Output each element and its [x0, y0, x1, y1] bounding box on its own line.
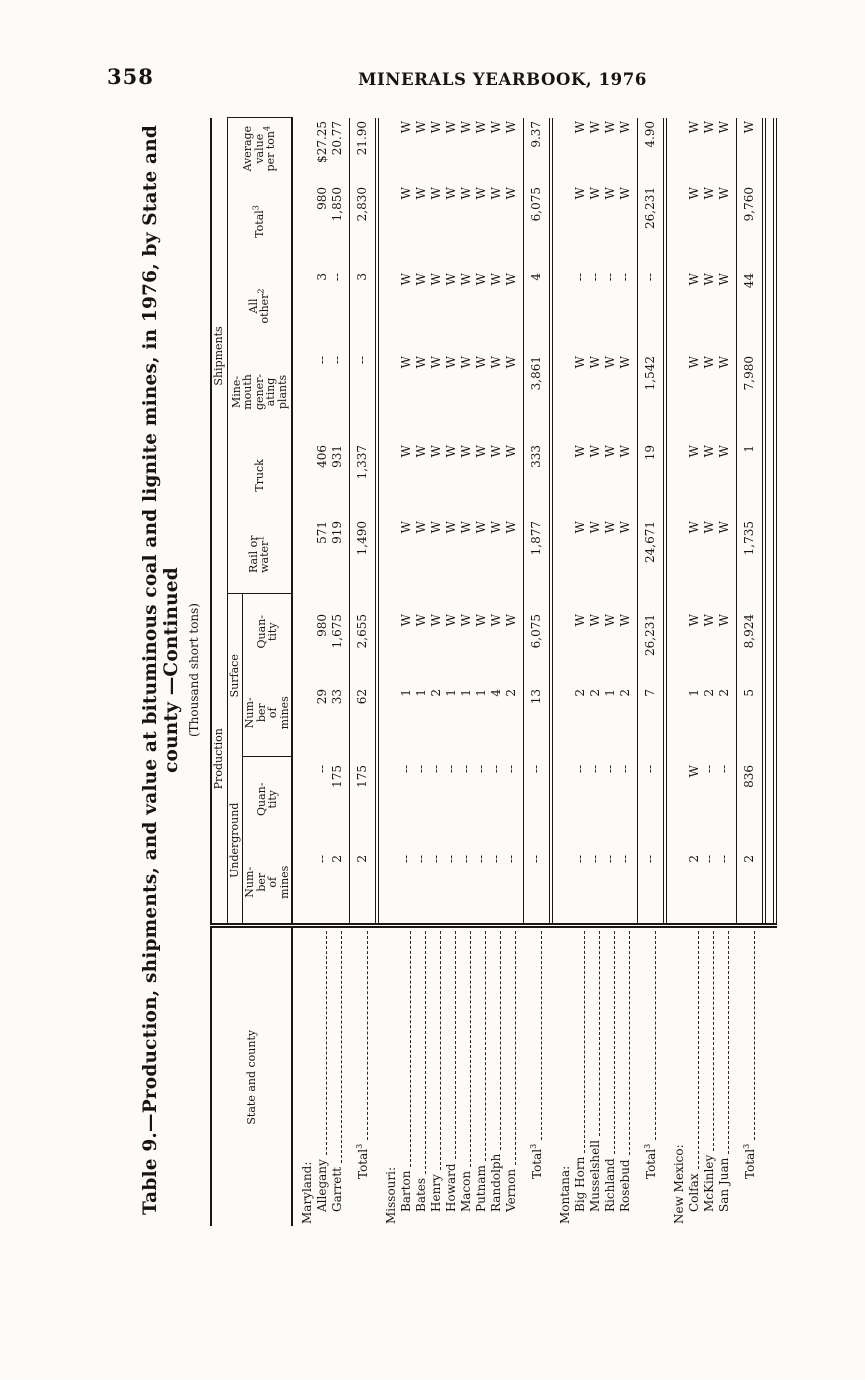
data-cell: W	[459, 515, 474, 594]
data-cell: --	[315, 841, 330, 926]
data-cell: --	[350, 348, 378, 436]
leader-dashes	[485, 932, 486, 1162]
data-cell: 33	[330, 669, 350, 757]
data-cell: 175	[350, 757, 378, 841]
data-cell: 1	[474, 669, 489, 757]
data-cell	[377, 118, 399, 179]
data-cell: --	[618, 841, 638, 926]
data-cell: 919	[330, 515, 350, 594]
row-label: Montana:	[558, 1166, 573, 1224]
row-label: Putnam	[474, 1165, 489, 1212]
data-cell: W	[414, 118, 429, 179]
data-cell: 6,075	[524, 594, 552, 669]
leader-dashes	[614, 932, 615, 1155]
table-bottom-rule-row	[764, 118, 775, 1226]
data-cell: --	[399, 841, 414, 926]
data-cell: W	[618, 179, 638, 264]
data-cell: --	[573, 264, 588, 348]
row-label: Howard	[444, 1163, 459, 1212]
data-cell: W	[717, 515, 737, 594]
table-row-county: Rosebud----2WWWW--WW	[618, 118, 638, 1226]
data-cell	[665, 264, 687, 348]
data-cell: W	[588, 594, 603, 669]
stub-cell: Maryland:	[292, 926, 315, 1226]
data-cell: W	[399, 515, 414, 594]
data-cell	[292, 264, 315, 348]
data-cell: --	[444, 841, 459, 926]
subgroup-header-underground: Underground	[227, 757, 243, 926]
data-cell: W	[414, 264, 429, 348]
data-cell: W	[573, 594, 588, 669]
data-cell: 1,490	[350, 515, 378, 594]
table-row-county: Randolph----4WWWWWWW	[489, 118, 504, 1226]
data-cell: W	[603, 118, 618, 179]
data-cell	[292, 841, 315, 926]
leader-dashes	[470, 932, 471, 1167]
data-cell: --	[618, 264, 638, 348]
data-cell: 931	[330, 436, 350, 515]
data-cell: W	[444, 515, 459, 594]
row-label: McKinley	[702, 1155, 717, 1212]
column-header-truck: Truck	[227, 436, 292, 515]
data-cell: W	[618, 594, 638, 669]
data-cell: 980	[315, 594, 330, 669]
data-cell: --	[573, 841, 588, 926]
stub-cell: Bates	[414, 926, 429, 1226]
data-cell: W	[414, 515, 429, 594]
data-cell	[377, 841, 399, 926]
data-cell	[551, 594, 573, 669]
row-label: Allegany	[315, 1159, 330, 1212]
stub-cell: Randolph	[489, 926, 504, 1226]
data-cell: W	[687, 515, 702, 594]
rotated-table-content: Table 9.—Production, shipments, and valu…	[140, 114, 800, 1226]
table-row-county: McKinley----2WWWWWWW	[702, 118, 717, 1226]
data-cell: --	[429, 841, 444, 926]
data-cell	[377, 264, 399, 348]
data-cell: --	[603, 264, 618, 348]
stub-cell: Allegany	[315, 926, 330, 1226]
scanned-document-page: 358 MINERALS YEARBOOK, 1976 Table 9.—Pro…	[0, 0, 865, 1380]
data-cell: 3,861	[524, 348, 552, 436]
table-title: Table 9.—Production, shipments, and valu…	[140, 114, 182, 1226]
column-header-all-other: Allother2	[227, 264, 292, 348]
row-label: Henry	[429, 1174, 444, 1212]
data-cell: W	[717, 348, 737, 436]
data-cell: W	[399, 436, 414, 515]
data-cell: W	[414, 594, 429, 669]
data-cell: W	[603, 515, 618, 594]
data-cell: --	[638, 264, 666, 348]
data-cell: W	[489, 594, 504, 669]
data-cell: 1,850	[330, 179, 350, 264]
data-cell: W	[504, 594, 524, 669]
data-cell: W	[702, 348, 717, 436]
data-cell	[551, 669, 573, 757]
data-cell: --	[444, 757, 459, 841]
data-cell: W	[687, 757, 702, 841]
stub-cell: Garrett	[330, 926, 350, 1226]
leader-dashes	[341, 932, 342, 1164]
data-cell	[292, 179, 315, 264]
data-cell	[665, 179, 687, 264]
data-cell: W	[618, 515, 638, 594]
data-cell: 1	[603, 669, 618, 757]
stub-cell: Total3	[638, 926, 666, 1226]
data-cell: 4	[489, 669, 504, 757]
data-cell: 406	[315, 436, 330, 515]
data-cell: 21.90	[350, 118, 378, 179]
data-cell	[377, 757, 399, 841]
data-cell: W	[603, 436, 618, 515]
stub-cell: Missouri:	[377, 926, 399, 1226]
data-cell	[665, 515, 687, 594]
row-label: Total3	[644, 1144, 659, 1179]
data-cell: 19	[638, 436, 666, 515]
data-cell: W	[399, 348, 414, 436]
data-cell: W	[429, 179, 444, 264]
data-cell: W	[489, 118, 504, 179]
data-cell: --	[638, 841, 666, 926]
data-cell	[665, 757, 687, 841]
data-cell: --	[315, 757, 330, 841]
table-row-county: Putnam----1WWWWWWW	[474, 118, 489, 1226]
data-cell: --	[588, 757, 603, 841]
data-cell: 29	[315, 669, 330, 757]
leader-dashes	[713, 932, 714, 1151]
stub-cell: Big Horn	[573, 926, 588, 1226]
stub-cell: Howard	[444, 926, 459, 1226]
data-cell	[665, 348, 687, 436]
data-cell: W	[588, 436, 603, 515]
row-label: Vernon	[504, 1169, 519, 1212]
data-cell: --	[459, 841, 474, 926]
data-cell: W	[489, 264, 504, 348]
data-cell: W	[429, 436, 444, 515]
data-cell	[551, 179, 573, 264]
stub-cell: McKinley	[702, 926, 717, 1226]
data-cell: W	[717, 264, 737, 348]
table-row-county: Musselshell----2WWWW--WW	[588, 118, 603, 1226]
data-cell	[292, 669, 315, 757]
data-cell: W	[687, 179, 702, 264]
data-cell: 1,877	[524, 515, 552, 594]
data-cell: W	[702, 515, 717, 594]
row-label: Bates	[414, 1178, 429, 1212]
row-label: Total3	[743, 1144, 758, 1179]
data-cell: 980	[315, 179, 330, 264]
data-cell: --	[638, 757, 666, 841]
data-cell: W	[474, 515, 489, 594]
row-label: Rosebud	[618, 1159, 633, 1212]
data-cell: W	[573, 348, 588, 436]
data-cell: --	[474, 757, 489, 841]
data-cell: 2	[618, 669, 638, 757]
row-label: Big Horn	[573, 1157, 588, 1212]
stub-cell: Total3	[350, 926, 378, 1226]
data-cell: W	[414, 179, 429, 264]
data-cell: 2,655	[350, 594, 378, 669]
data-cell: --	[717, 841, 737, 926]
stub-cell: Total3	[737, 926, 765, 1226]
column-header-average-value: Averagevalueper ton4	[227, 118, 292, 179]
data-cell: 1	[444, 669, 459, 757]
row-label: Macon	[459, 1171, 474, 1212]
data-cell: W	[414, 348, 429, 436]
data-cell: 2	[429, 669, 444, 757]
table-row-state: Missouri:	[377, 118, 399, 1226]
row-label: Total3	[530, 1144, 545, 1179]
table-row-total: Total32175622,6551,4901,337--32,83021.90	[350, 118, 378, 1226]
leader-dashes	[541, 932, 542, 1140]
data-cell: W	[474, 594, 489, 669]
data-cell: W	[459, 436, 474, 515]
data-cell: W	[474, 179, 489, 264]
data-cell: 4	[524, 264, 552, 348]
table-row-county: San Juan----2WWWWWWW	[717, 118, 737, 1226]
data-cell: --	[459, 757, 474, 841]
stub-header: State and county	[211, 926, 292, 1226]
data-cell: W	[573, 118, 588, 179]
data-cell: W	[474, 348, 489, 436]
data-cell: 1	[737, 436, 765, 515]
data-cell: --	[330, 348, 350, 436]
table-row-county: Macon----1WWWWWWW	[459, 118, 474, 1226]
table-row-county: Richland----1WWWW--WW	[603, 118, 618, 1226]
column-header-underground-number: Num-berofmines	[243, 841, 293, 926]
data-cell: W	[687, 436, 702, 515]
data-cell	[551, 264, 573, 348]
data-cell	[377, 179, 399, 264]
data-cell: W	[588, 348, 603, 436]
data-cell: 13	[524, 669, 552, 757]
row-label: Missouri:	[384, 1167, 399, 1224]
data-cell: 2	[702, 669, 717, 757]
row-label: Total3	[356, 1144, 371, 1179]
data-cell: 24,671	[638, 515, 666, 594]
data-cell: W	[474, 264, 489, 348]
data-cell: W	[459, 594, 474, 669]
data-cell: 175	[330, 757, 350, 841]
data-cell: 26,231	[638, 594, 666, 669]
data-cell: $27.25	[315, 118, 330, 179]
data-cell	[551, 348, 573, 436]
data-cell: 836	[737, 757, 765, 841]
data-cell: 571	[315, 515, 330, 594]
data-cell	[292, 515, 315, 594]
data-cell: 1	[414, 669, 429, 757]
stub-cell: Macon	[459, 926, 474, 1226]
data-cell: W	[504, 179, 524, 264]
data-cell: 3	[350, 264, 378, 348]
data-cell: W	[702, 264, 717, 348]
data-cell: 1,542	[638, 348, 666, 436]
data-cell: 7,980	[737, 348, 765, 436]
data-cell: W	[429, 348, 444, 436]
subgroup-header-surface: Surface	[227, 594, 243, 757]
data-cell: 1,337	[350, 436, 378, 515]
table-row-county: Barton----1WWWWWWW	[399, 118, 414, 1226]
stub-cell: Rosebud	[618, 926, 638, 1226]
row-label: Garrett	[330, 1167, 345, 1212]
table-row-county: Howard----1WWWWWWW	[444, 118, 459, 1226]
data-cell: 1	[687, 669, 702, 757]
stub-cell: Montana:	[551, 926, 573, 1226]
data-cell: W	[459, 179, 474, 264]
data-cell: W	[429, 118, 444, 179]
data-cell: --	[489, 757, 504, 841]
column-header-surface-number: Num-berofmines	[243, 669, 293, 757]
leader-dashes	[728, 932, 729, 1154]
data-cell: W	[459, 118, 474, 179]
data-cell: --	[474, 841, 489, 926]
stub-cell: Musselshell	[588, 926, 603, 1226]
data-cell: W	[444, 348, 459, 436]
data-cell	[665, 594, 687, 669]
data-cell: W	[573, 515, 588, 594]
table-row-county: Garrett2175331,675919931----1,85020.77	[330, 118, 350, 1226]
group-header-production: Production	[211, 594, 227, 926]
leader-dashes	[500, 932, 501, 1150]
data-cell: --	[330, 264, 350, 348]
data-cell: W	[399, 594, 414, 669]
leader-dashes	[326, 932, 327, 1156]
table-row-county: Henry----2WWWWWWW	[429, 118, 444, 1226]
data-cell: 44	[737, 264, 765, 348]
data-cell: W	[717, 118, 737, 179]
data-cell: 8,924	[737, 594, 765, 669]
data-cell: W	[588, 179, 603, 264]
data-cell: W	[588, 118, 603, 179]
data-cell: W	[444, 264, 459, 348]
data-cell: W	[717, 436, 737, 515]
running-head: MINERALS YEARBOOK, 1976	[140, 70, 865, 89]
data-cell: W	[489, 515, 504, 594]
stub-cell: New Mexico:	[665, 926, 687, 1226]
data-cell	[292, 757, 315, 841]
statistics-table: State and countyProductionShipmentsUnder…	[210, 117, 777, 1226]
table-row-county: Bates----1WWWWWWW	[414, 118, 429, 1226]
data-cell: 2	[588, 669, 603, 757]
data-cell: --	[702, 841, 717, 926]
data-cell: W	[489, 436, 504, 515]
data-cell: W	[603, 348, 618, 436]
leader-dashes	[698, 932, 699, 1170]
data-cell: --	[573, 757, 588, 841]
data-cell: W	[414, 436, 429, 515]
data-cell: W	[399, 264, 414, 348]
data-cell	[665, 841, 687, 926]
table-row-county: Colfax2W1WWWWWWW	[687, 118, 702, 1226]
data-cell: W	[504, 436, 524, 515]
data-cell: W	[444, 118, 459, 179]
data-cell: --	[504, 757, 524, 841]
stub-cell: San Juan	[717, 926, 737, 1226]
row-label: New Mexico:	[672, 1144, 687, 1224]
row-label: Maryland:	[300, 1162, 315, 1224]
row-label: Musselshell	[588, 1140, 603, 1212]
data-cell: W	[702, 594, 717, 669]
data-cell: W	[504, 348, 524, 436]
data-cell	[551, 118, 573, 179]
column-header-mine-mouth: Mine-mouthgener-atingplants	[227, 348, 292, 436]
data-cell: --	[489, 841, 504, 926]
data-cell: W	[588, 515, 603, 594]
data-cell: W	[687, 594, 702, 669]
data-cell: --	[603, 757, 618, 841]
data-cell: 2	[737, 841, 765, 926]
data-cell: W	[489, 179, 504, 264]
data-cell: 2	[687, 841, 702, 926]
data-cell: W	[399, 118, 414, 179]
data-cell: W	[429, 264, 444, 348]
data-cell	[377, 436, 399, 515]
leader-dashes	[629, 932, 630, 1156]
data-cell: 2	[350, 841, 378, 926]
data-cell: W	[702, 118, 717, 179]
data-cell	[551, 436, 573, 515]
data-cell: W	[687, 264, 702, 348]
stub-cell: Vernon	[504, 926, 524, 1226]
column-header-rail-or-water: Rail orwater1	[227, 515, 292, 594]
bottom-double-rule	[764, 118, 775, 926]
data-cell: W	[444, 179, 459, 264]
data-cell: W	[687, 118, 702, 179]
data-cell: --	[603, 841, 618, 926]
stub-cell: Barton	[399, 926, 414, 1226]
data-cell: W	[429, 594, 444, 669]
data-cell: --	[315, 348, 330, 436]
table-row-county: Big Horn----2WWWW--WW	[573, 118, 588, 1226]
stub-cell	[764, 926, 775, 1226]
data-cell: 6,075	[524, 179, 552, 264]
data-cell: W	[618, 436, 638, 515]
data-cell: --	[414, 841, 429, 926]
data-cell: W	[702, 436, 717, 515]
stub-cell: Putnam	[474, 926, 489, 1226]
leader-dashes	[754, 932, 755, 1140]
data-cell: --	[414, 757, 429, 841]
data-cell: 3	[315, 264, 330, 348]
data-cell: 9,760	[737, 179, 765, 264]
stub-cell: Richland	[603, 926, 618, 1226]
column-header-underground-quantity: Quan-tity	[243, 757, 293, 841]
data-cell	[377, 515, 399, 594]
data-cell	[551, 757, 573, 841]
data-cell: 2	[717, 669, 737, 757]
data-cell: W	[474, 118, 489, 179]
data-cell: W	[444, 594, 459, 669]
data-cell	[377, 669, 399, 757]
row-label: Colfax	[687, 1173, 702, 1212]
row-label: Randolph	[489, 1154, 504, 1212]
data-cell: W	[603, 594, 618, 669]
header-group-row: State and countyProductionShipments	[211, 118, 227, 1226]
data-cell: 5	[737, 669, 765, 757]
table-row-state: Montana:	[551, 118, 573, 1226]
data-cell: W	[459, 348, 474, 436]
data-cell: --	[618, 757, 638, 841]
table-row-total: Total3283658,9241,73517,980449,760W	[737, 118, 765, 1226]
table-row-total: Total3----726,23124,671191,542--26,2314.…	[638, 118, 666, 1226]
data-cell: W	[459, 264, 474, 348]
leader-dashes	[515, 932, 516, 1165]
data-cell: 26,231	[638, 179, 666, 264]
data-cell: --	[702, 757, 717, 841]
leader-dashes	[599, 932, 600, 1137]
data-cell: --	[588, 841, 603, 926]
data-cell: --	[524, 757, 552, 841]
